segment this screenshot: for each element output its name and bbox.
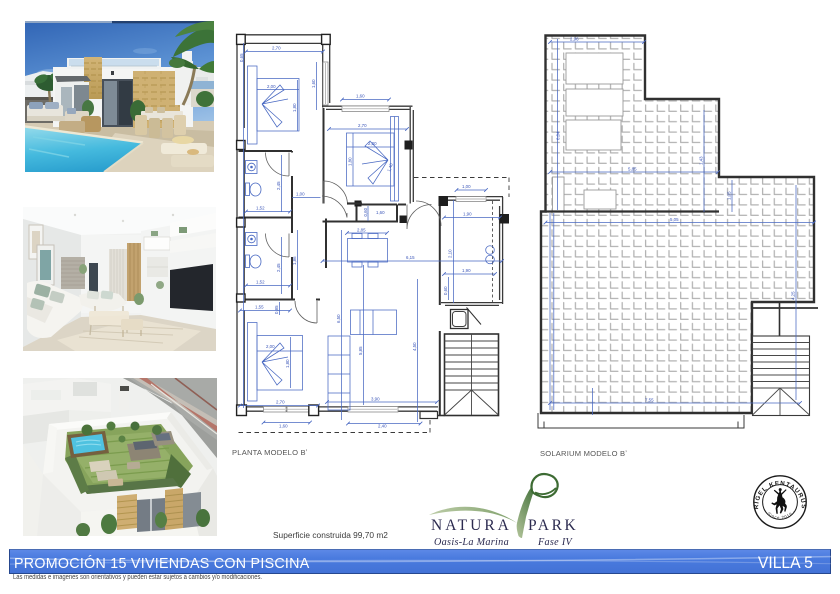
svg-text:1,52: 1,52 [256, 280, 265, 285]
svg-text:2,00: 2,00 [368, 141, 377, 146]
svg-text:2,45: 2,45 [276, 263, 281, 272]
svg-text:2,45: 2,45 [276, 181, 281, 190]
svg-text:1,80: 1,80 [292, 103, 297, 112]
svg-text:1,52: 1,52 [256, 206, 265, 211]
svg-text:0,65: 0,65 [239, 53, 244, 62]
svg-text:2,00: 2,00 [267, 84, 276, 89]
svg-text:PARK: PARK [528, 517, 578, 534]
svg-text:1,40: 1,40 [386, 162, 394, 172]
svg-text:3,90: 3,90 [371, 397, 380, 402]
svg-text:2,85: 2,85 [357, 228, 366, 233]
svg-text:1,60: 1,60 [376, 210, 385, 215]
svg-text:0,85: 0,85 [274, 305, 279, 314]
svg-text:5,05: 5,05 [670, 217, 679, 222]
svg-text:1,00: 1,00 [462, 184, 471, 189]
svg-text:1,60: 1,60 [279, 424, 288, 429]
svg-text:5,85: 5,85 [358, 346, 363, 355]
svg-text:1,90: 1,90 [463, 212, 472, 217]
svg-text:6,50: 6,50 [336, 314, 341, 323]
svg-text:5,85: 5,85 [628, 167, 637, 172]
svg-text:2,70: 2,70 [272, 46, 281, 51]
svg-text:2,70: 2,70 [358, 123, 367, 128]
svg-text:0,60: 0,60 [443, 286, 448, 295]
svg-text:1,43: 1,43 [699, 156, 704, 165]
svg-text:1,00: 1,00 [296, 192, 305, 197]
svg-text:6,15: 6,15 [406, 255, 415, 260]
svg-text:1,80: 1,80 [348, 157, 353, 166]
svg-text:4,50: 4,50 [412, 342, 417, 351]
svg-text:2,96: 2,96 [570, 37, 579, 42]
svg-text:0,60: 0,60 [363, 207, 368, 216]
svg-text:2,10: 2,10 [448, 249, 453, 258]
svg-text:Fase IV: Fase IV [537, 537, 574, 548]
svg-text:2,00: 2,00 [266, 344, 275, 349]
svg-text:1,86: 1,86 [292, 256, 297, 265]
svg-text:2,40: 2,40 [378, 424, 387, 429]
svg-text:4,25: 4,25 [791, 291, 796, 300]
svg-text:2,70: 2,70 [276, 400, 285, 405]
svg-text:1,90: 1,90 [462, 268, 471, 273]
svg-text:6,04: 6,04 [556, 131, 561, 140]
svg-text:1,80: 1,80 [285, 359, 290, 368]
svg-text:1,05: 1,05 [727, 191, 732, 200]
svg-text:1,55: 1,55 [255, 305, 264, 310]
svg-text:7,55: 7,55 [645, 398, 654, 403]
svg-text:Oasis-La Marina: Oasis-La Marina [434, 537, 509, 548]
svg-text:NATURA: NATURA [431, 517, 512, 534]
svg-text:1,60: 1,60 [311, 79, 316, 88]
svg-text:1,60: 1,60 [356, 94, 365, 99]
